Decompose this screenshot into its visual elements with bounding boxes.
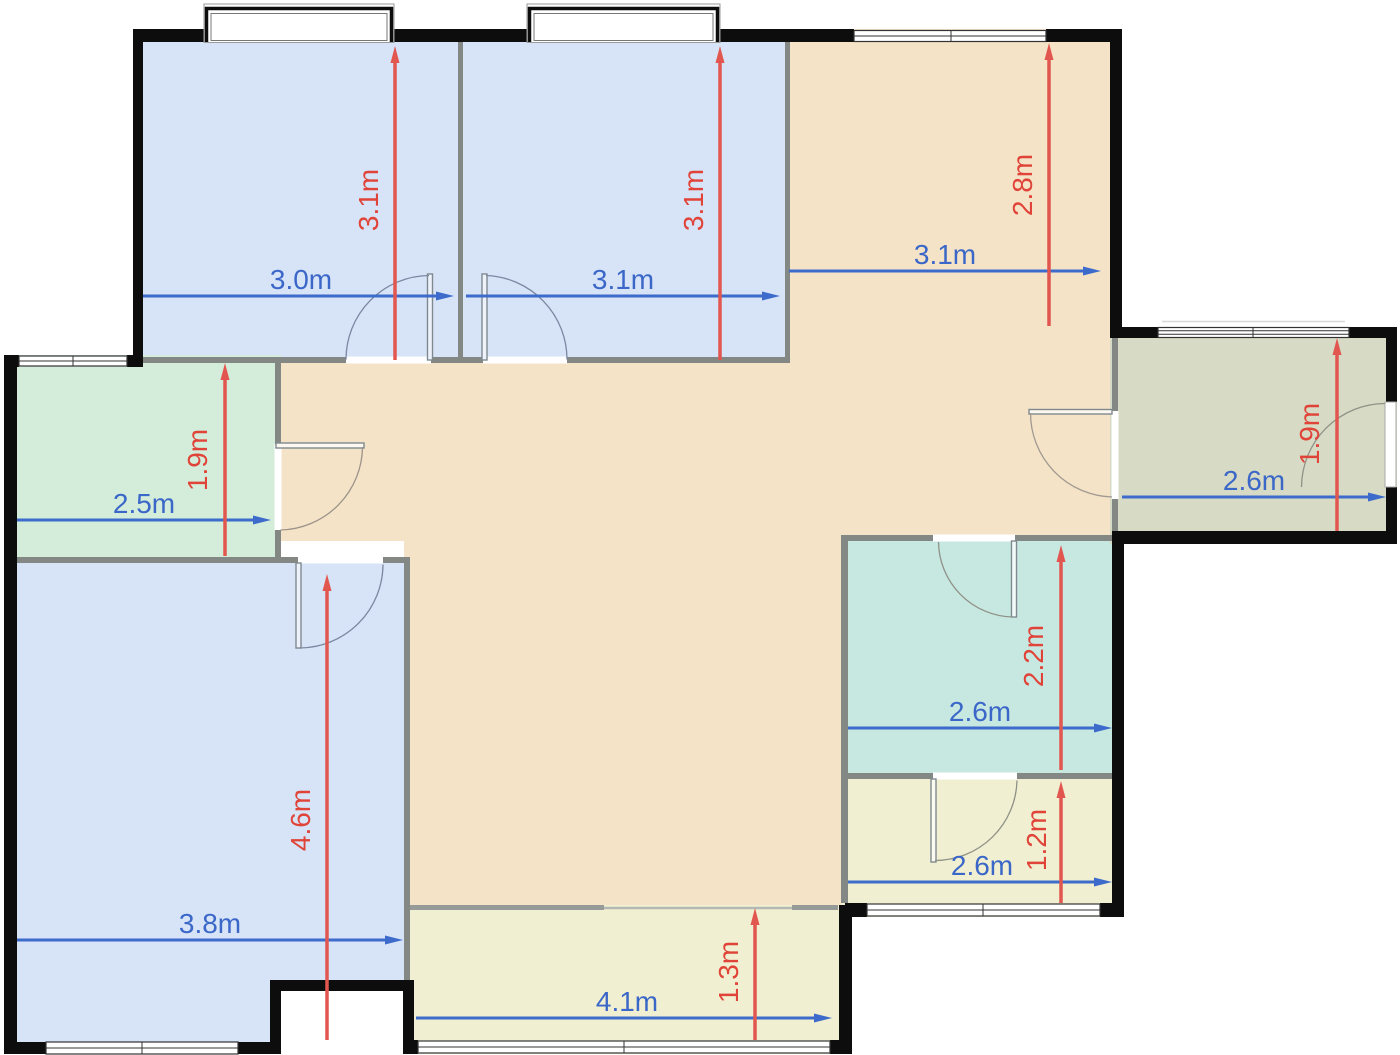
svg-text:3.1m: 3.1m [678,169,709,231]
svg-text:2.6m: 2.6m [951,850,1013,881]
svg-text:2.6m: 2.6m [949,696,1011,727]
svg-text:2.2m: 2.2m [1018,625,1049,687]
svg-text:3.8m: 3.8m [179,908,241,939]
svg-text:1.2m: 1.2m [1021,809,1052,871]
svg-text:3.1m: 3.1m [353,169,384,231]
svg-text:3.0m: 3.0m [270,264,332,295]
svg-text:1.9m: 1.9m [1294,403,1325,465]
svg-text:4.1m: 4.1m [596,986,658,1017]
svg-text:2.6m: 2.6m [1223,465,1285,496]
svg-text:2.8m: 2.8m [1007,154,1038,216]
svg-text:1.9m: 1.9m [182,429,213,491]
svg-text:4.6m: 4.6m [285,789,316,851]
svg-text:3.1m: 3.1m [592,264,654,295]
svg-text:2.5m: 2.5m [113,488,175,519]
svg-text:1.3m: 1.3m [713,941,744,1003]
svg-text:3.1m: 3.1m [914,239,976,270]
